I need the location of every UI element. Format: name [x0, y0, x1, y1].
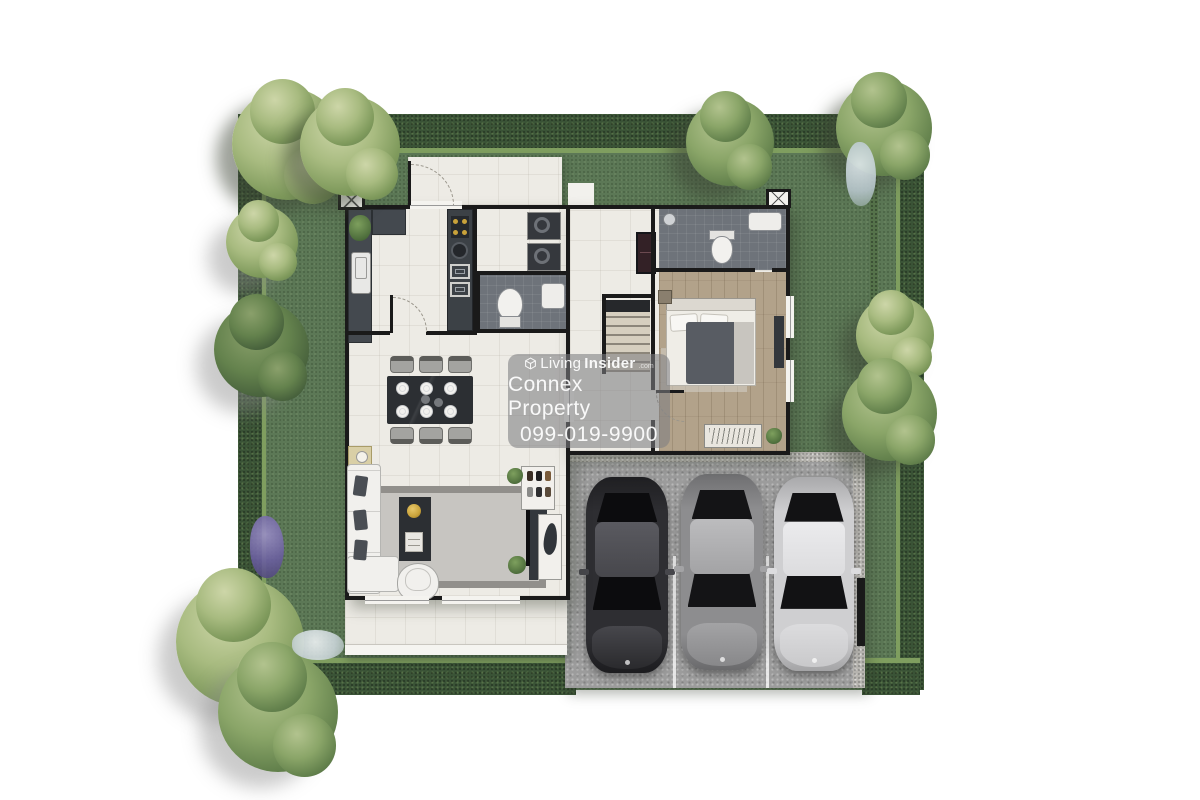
- coffee-table-books: [405, 532, 423, 552]
- bedroom-tv-panel: [774, 316, 784, 368]
- car-windshield: [780, 576, 847, 609]
- garage-wall-segment: [857, 578, 865, 646]
- toilet: [711, 236, 733, 264]
- throw-pillow: [353, 509, 368, 530]
- watermark-panel: Living Insider .com Connex Property 099-…: [508, 354, 670, 448]
- shoe-rack: [521, 466, 555, 510]
- car-rear-window: [784, 493, 843, 522]
- wall-bath-small-bottom: [476, 329, 566, 333]
- throw-pillow: [353, 475, 369, 497]
- wall-bath-small-top: [476, 271, 566, 275]
- dining-chair: [419, 356, 443, 373]
- table-centerpiece: [421, 395, 430, 404]
- kitchen-plant: [349, 215, 371, 241]
- window: [786, 360, 794, 402]
- tree: [226, 206, 298, 278]
- staircase-landing: [606, 300, 650, 312]
- sofa-chaise: [347, 556, 399, 592]
- place-setting: [420, 405, 433, 418]
- bathroom-sink: [748, 212, 782, 231]
- table-centerpiece: [434, 398, 443, 407]
- brand-suffix: .com: [639, 363, 654, 370]
- floor-plan-scene: Living Insider .com Connex Property 099-…: [0, 0, 1200, 800]
- terrace-step: [345, 644, 567, 655]
- washing-machine: [527, 212, 561, 240]
- watermark-brand-row: Living Insider .com: [524, 356, 653, 371]
- cooktop: [451, 216, 469, 238]
- entry-console: [538, 514, 562, 580]
- wall-stairs-top: [602, 294, 654, 298]
- car-rear-window: [597, 493, 658, 522]
- window: [442, 596, 520, 604]
- terrace-bottom: [345, 600, 567, 648]
- place-setting: [396, 382, 409, 395]
- terrace-pad: [568, 183, 594, 205]
- car-roof: [783, 522, 845, 576]
- car-mirror: [851, 568, 861, 574]
- wall-bath-main-bottom: [655, 268, 755, 272]
- place-setting: [444, 382, 457, 395]
- kitchen-island: [447, 209, 473, 331]
- nightstand: [658, 290, 672, 304]
- car-mirror: [767, 568, 777, 574]
- tv-screen: [526, 508, 530, 566]
- wall-kitchen-bottom: [345, 331, 390, 335]
- dining-chair: [448, 427, 472, 444]
- car-roof: [595, 522, 659, 577]
- kitchen-counter: [372, 209, 406, 235]
- car-gray: [681, 474, 763, 670]
- wall-kitchen-bottom: [426, 331, 477, 335]
- watermark-company: Connex Property: [508, 373, 670, 421]
- place-setting: [444, 405, 457, 418]
- flower-patch-white: [292, 630, 344, 660]
- dining-chair: [419, 427, 443, 444]
- shower-head: [663, 213, 676, 226]
- toilet-tank: [499, 316, 521, 328]
- tree: [218, 652, 338, 772]
- kitchen-sink: [351, 252, 371, 294]
- place-setting: [396, 405, 409, 418]
- oven: [450, 282, 470, 297]
- dining-chair: [390, 356, 414, 373]
- leaf-decor: [542, 522, 558, 555]
- tree: [686, 98, 774, 186]
- bathroom-sink: [541, 283, 565, 309]
- car-mirror: [579, 569, 589, 575]
- tree: [214, 302, 309, 397]
- car-rear-window: [692, 490, 753, 519]
- decor-bowl: [407, 504, 421, 518]
- car-windshield: [593, 577, 662, 610]
- car-roof: [690, 519, 754, 574]
- car-mirror: [674, 566, 684, 572]
- parking-line: [673, 556, 676, 688]
- ac-unit-pad: [766, 189, 791, 208]
- wall-bath-small-left: [476, 271, 480, 333]
- flower-patch-white: [846, 142, 876, 206]
- car-windshield: [688, 574, 757, 607]
- car-silver: [774, 477, 854, 671]
- hedge-bottom-right: [862, 658, 920, 695]
- brand-insider: Insider: [584, 356, 635, 371]
- dining-chair: [390, 427, 414, 444]
- living-insider-cube-icon: [524, 357, 537, 370]
- flower-patch-purple: [250, 516, 284, 578]
- tree: [842, 366, 937, 461]
- wall-bath-main-bottom: [772, 268, 788, 272]
- brand-living: Living: [540, 356, 581, 371]
- side-table-lamp: [348, 446, 372, 466]
- watermark-phone: 099-019-9900: [520, 423, 658, 447]
- bed-throw: [734, 322, 754, 384]
- tree: [300, 96, 400, 196]
- island-sink: [451, 242, 468, 259]
- place-setting: [420, 382, 433, 395]
- throw-pillow: [353, 539, 368, 560]
- parking-line: [766, 556, 769, 688]
- dryer: [527, 243, 561, 271]
- wardrobe: [704, 424, 762, 448]
- oven: [450, 264, 470, 279]
- window: [365, 596, 429, 604]
- window: [786, 296, 794, 338]
- car-dark: [586, 477, 668, 673]
- dining-table: [387, 376, 473, 424]
- dining-chair: [448, 356, 472, 373]
- garage-driveway: [565, 452, 865, 688]
